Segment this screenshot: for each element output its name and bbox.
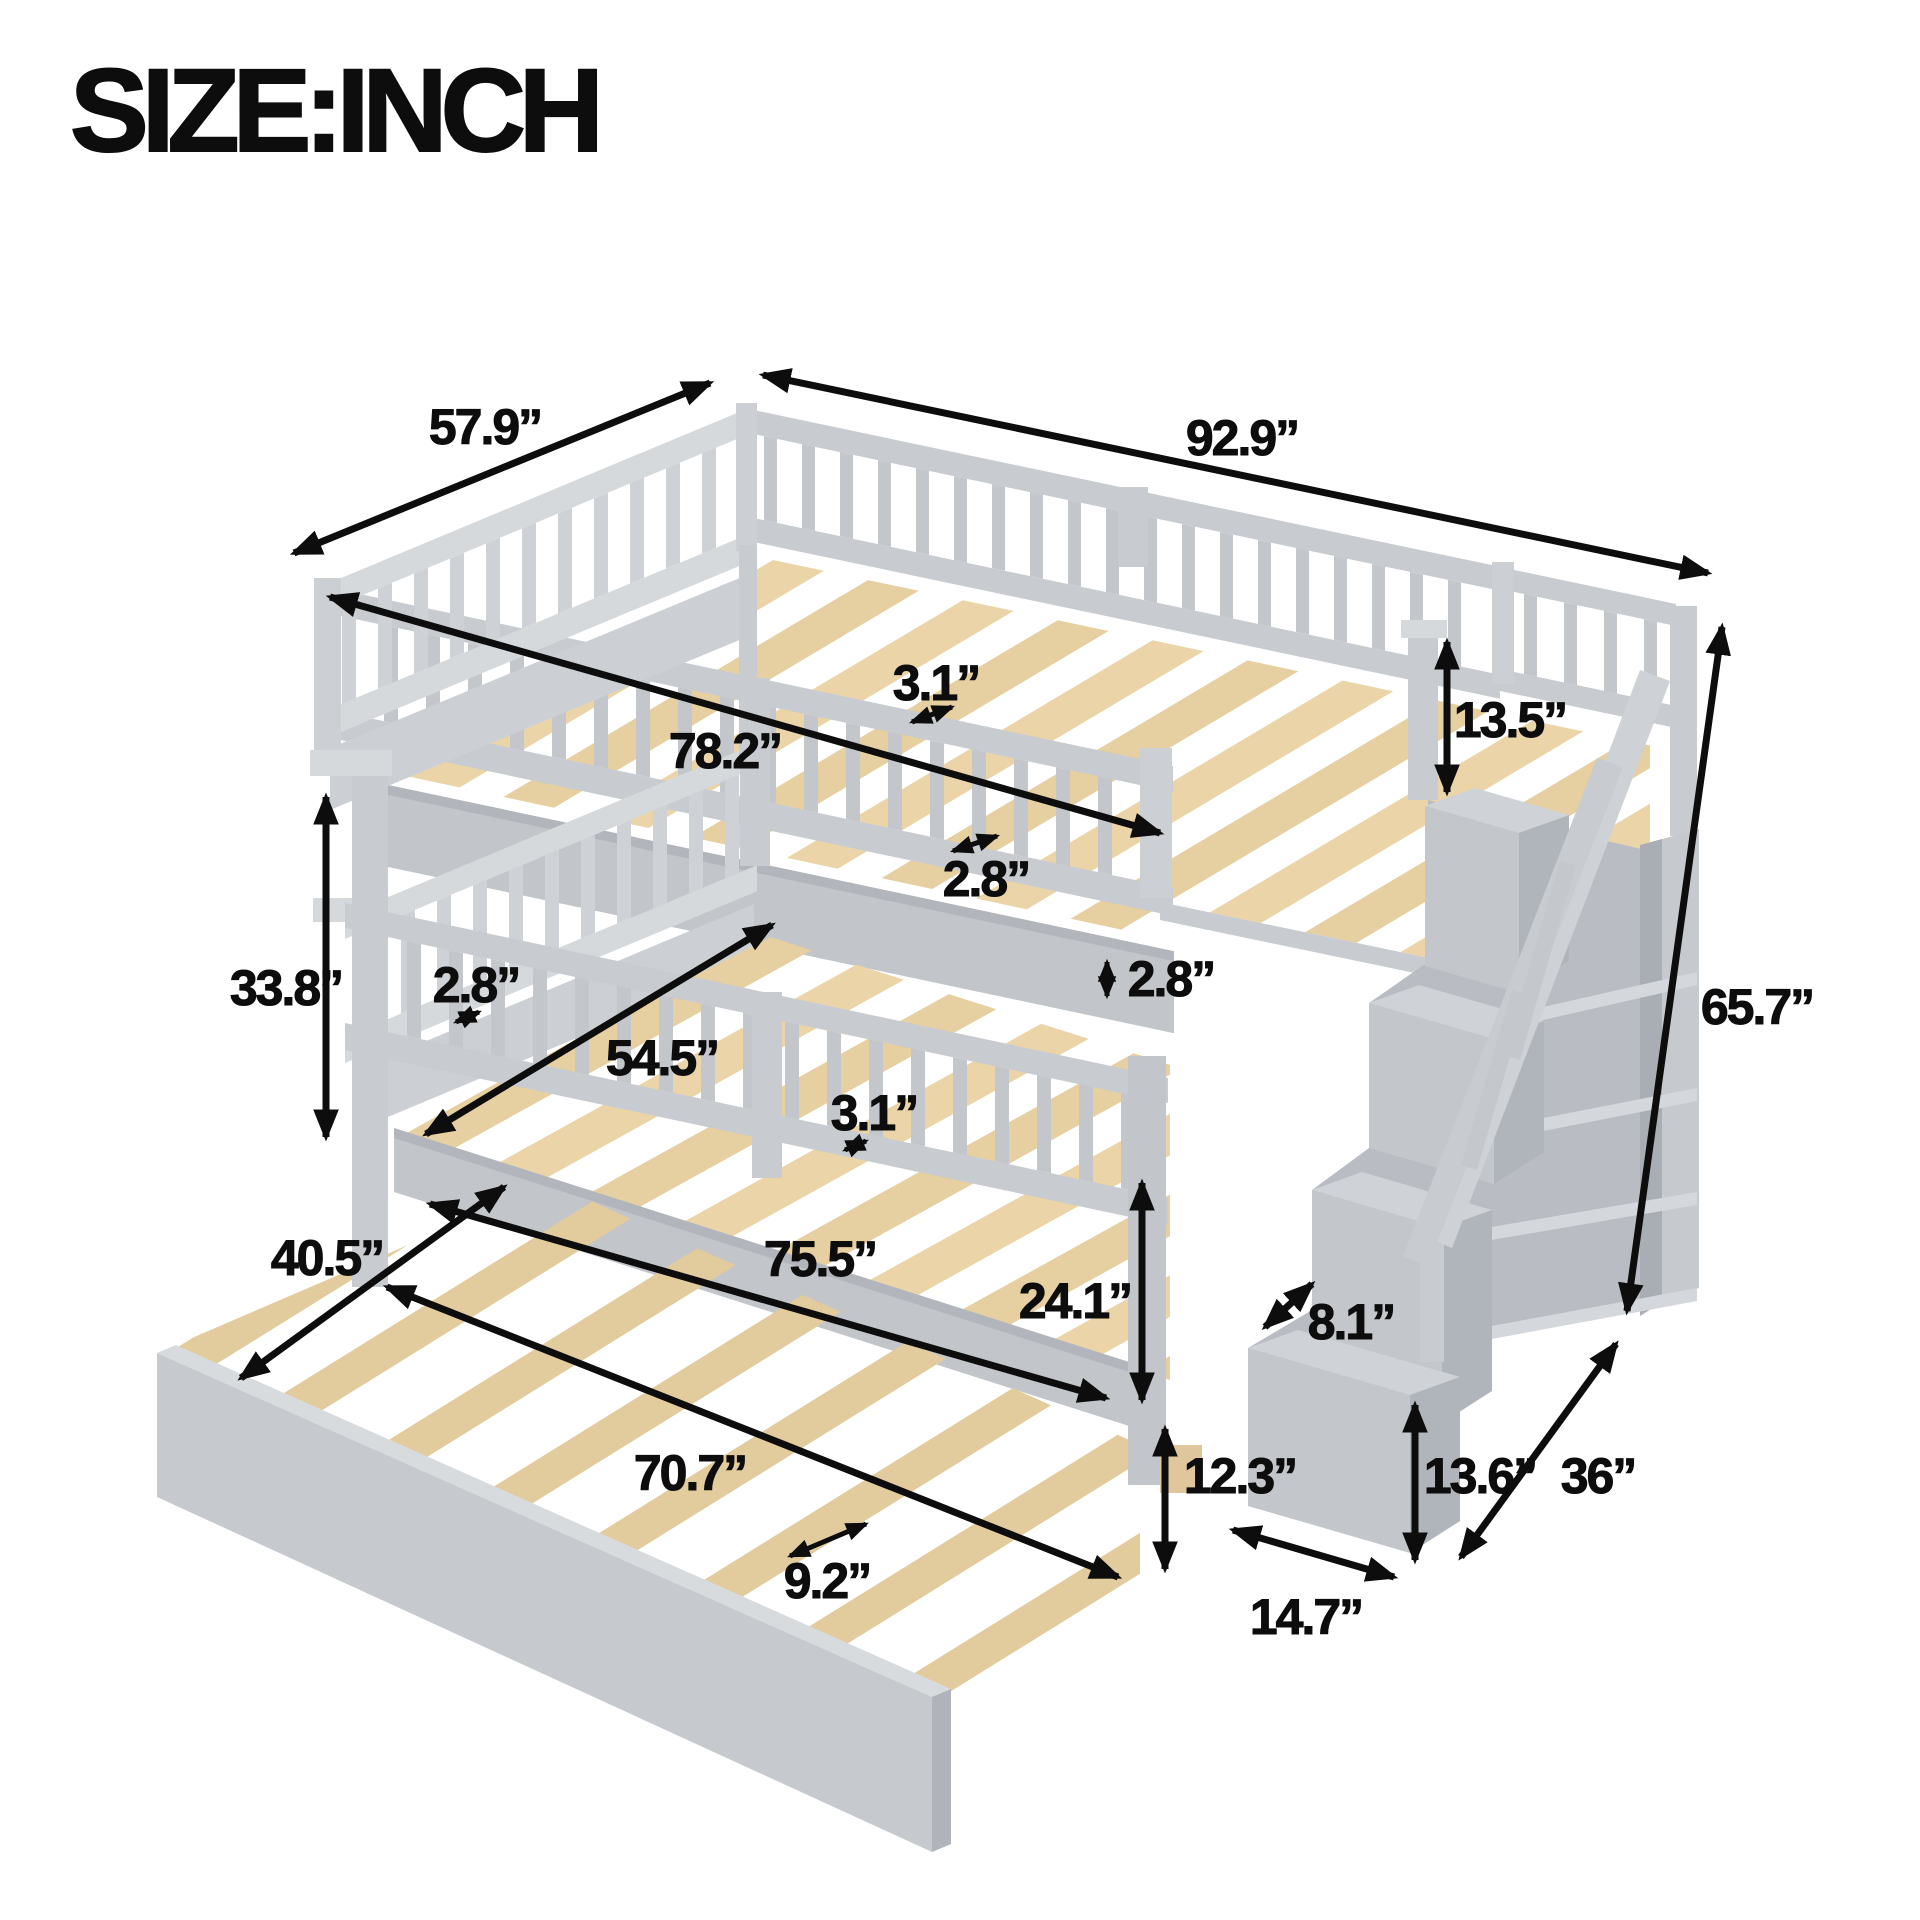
svg-text:75.5”: 75.5”: [764, 1231, 876, 1287]
svg-text:2.8”: 2.8”: [1128, 951, 1215, 1007]
svg-text:54.5”: 54.5”: [606, 1030, 718, 1086]
svg-text:65.7”: 65.7”: [1701, 979, 1813, 1035]
svg-text:57.9”: 57.9”: [429, 399, 541, 455]
svg-text:13.5”: 13.5”: [1454, 692, 1566, 748]
svg-text:92.9”: 92.9”: [1186, 410, 1298, 466]
svg-text:8.1”: 8.1”: [1308, 1294, 1395, 1350]
svg-text:13.6”: 13.6”: [1424, 1448, 1536, 1504]
svg-text:2.8”: 2.8”: [943, 851, 1030, 907]
svg-text:70.7”: 70.7”: [634, 1445, 746, 1501]
svg-text:12.3”: 12.3”: [1184, 1448, 1296, 1504]
svg-text:9.2”: 9.2”: [784, 1553, 871, 1609]
svg-text:40.5”: 40.5”: [271, 1230, 383, 1286]
svg-text:24.1”: 24.1”: [1019, 1273, 1131, 1329]
svg-text:14.7”: 14.7”: [1250, 1589, 1362, 1645]
svg-text:3.1”: 3.1”: [893, 655, 980, 711]
svg-text:36”: 36”: [1561, 1448, 1636, 1504]
svg-text:33.8”: 33.8”: [230, 960, 342, 1016]
svg-text:78.2”: 78.2”: [669, 723, 781, 779]
svg-text:SIZE:INCH: SIZE:INCH: [70, 45, 597, 177]
svg-text:3.1”: 3.1”: [831, 1085, 918, 1141]
svg-text:2.8”: 2.8”: [433, 957, 520, 1013]
